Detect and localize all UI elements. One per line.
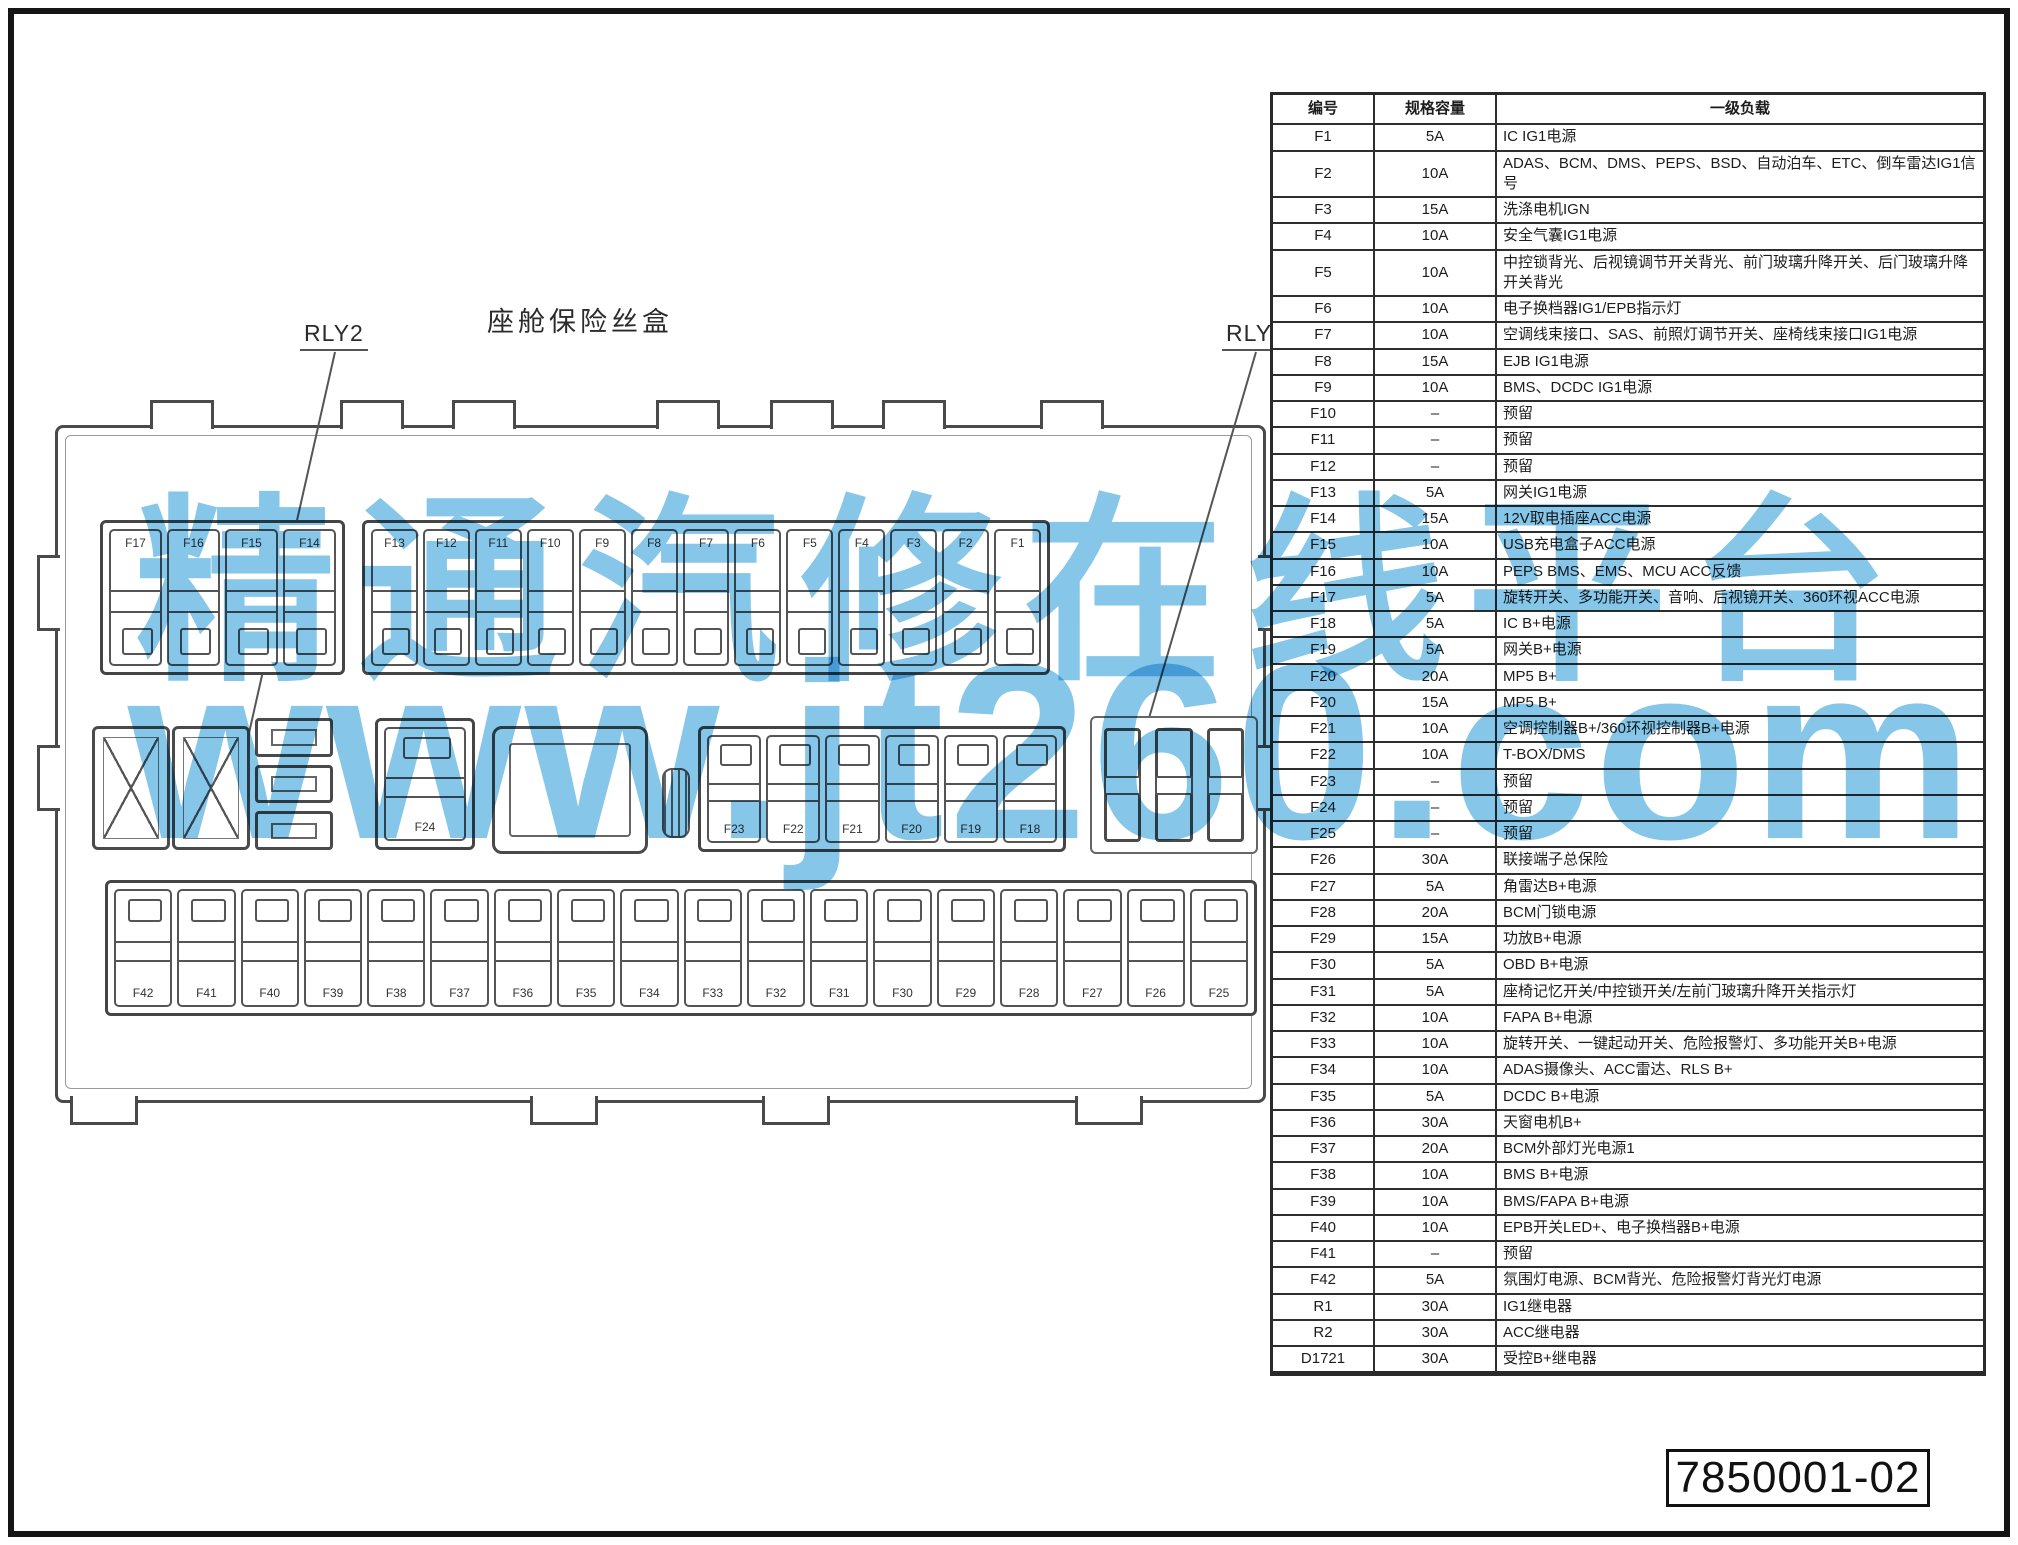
- fuse-label: F5: [788, 536, 831, 550]
- fuse-rating: 10A: [1374, 1005, 1496, 1031]
- fuse-load: 角雷达B+电源: [1496, 874, 1985, 900]
- fuse-bar: [683, 590, 730, 614]
- fuse-label: F39: [306, 986, 360, 1000]
- fuse-id: F22: [1272, 742, 1375, 768]
- fuse-row-F4: F410A安全气囊IG1电源: [1272, 223, 1985, 249]
- fuse-bar: [1190, 941, 1248, 962]
- fuse-bar: [114, 941, 172, 962]
- fuse-F19: F19: [944, 735, 998, 843]
- fuse-load: 电子换档器IG1/EPB指示灯: [1496, 296, 1985, 322]
- fuse-id: F20: [1272, 664, 1375, 690]
- fuse-row-R1: R130AIG1继电器: [1272, 1294, 1985, 1320]
- fuse-F42: F42: [114, 889, 172, 1007]
- fuse-load: 受控B+继电器: [1496, 1346, 1985, 1374]
- fuse-label: F27: [1065, 986, 1119, 1000]
- fuse-row-F12: F12–预留: [1272, 454, 1985, 480]
- fuse-load: 空调线束接口、SAS、前照灯调节开关、座椅线束接口IG1电源: [1496, 322, 1985, 348]
- fuse-row-F3: F315A洗涤电机IGN: [1272, 197, 1985, 223]
- fuse-load: 中控锁背光、后视镜调节开关背光、前门玻璃升降开关、后门玻璃升降开关背光: [1496, 250, 1985, 297]
- fuse-id: F38: [1272, 1162, 1375, 1188]
- fuse-table-head: 编号 规格容量 一级负载: [1272, 94, 1985, 125]
- fuse-load: 网关IG1电源: [1496, 480, 1985, 506]
- fuse-load: 空调控制器B+/360环视控制器B+电源: [1496, 716, 1985, 742]
- fuse-F15: F15: [225, 529, 278, 666]
- fuse-row-F13: F135A网关IG1电源: [1272, 480, 1985, 506]
- fuse-label: F8: [633, 536, 676, 550]
- fuse-label: F28: [1002, 986, 1056, 1000]
- fuse-slot: [1204, 899, 1238, 922]
- fuse-rating: 30A: [1374, 1294, 1496, 1320]
- fuse-row-F10: F10–预留: [1272, 401, 1985, 427]
- fuse-bar: [527, 590, 574, 614]
- fuse-id: F4: [1272, 223, 1375, 249]
- fuse-F10: F10: [527, 529, 574, 666]
- fuse-rating: 10A: [1374, 742, 1496, 768]
- fuse-row-F28: F2820ABCM门锁电源: [1272, 900, 1985, 926]
- fuse-slot: [720, 744, 752, 766]
- fuse-rating: 5A: [1374, 124, 1496, 150]
- fuse-load: 天窗电机B+: [1496, 1110, 1985, 1136]
- fuse-id: F6: [1272, 296, 1375, 322]
- fuse-slot: [898, 744, 930, 766]
- fuse-row-F29: F2915A功放B+电源: [1272, 926, 1985, 952]
- fuse-label: F10: [529, 536, 572, 550]
- fuse-rating: 15A: [1374, 690, 1496, 716]
- fuse-bar: [430, 941, 488, 962]
- fuse-F1: F1: [994, 529, 1041, 666]
- fuse-id: F3: [1272, 197, 1375, 223]
- fuse-load: 12V取电插座ACC电源: [1496, 506, 1985, 532]
- fuse-load: 预留: [1496, 427, 1985, 453]
- fuse-bar: [786, 590, 833, 614]
- fuse-bar: [994, 590, 1041, 614]
- fuse-rating: 5A: [1374, 611, 1496, 637]
- fuse-F40: F40: [241, 889, 299, 1007]
- fuse-F33: F33: [684, 889, 742, 1007]
- fuse-id: F32: [1272, 1005, 1375, 1031]
- fuse-row-F27: F275A角雷达B+电源: [1272, 874, 1985, 900]
- fuse-rating: 20A: [1374, 664, 1496, 690]
- fuse-label: F12: [425, 536, 468, 550]
- fuse-label: F4: [840, 536, 883, 550]
- fuse-slot: [902, 628, 930, 655]
- fuse-bar: [747, 941, 805, 962]
- fuse-load: MP5 B+: [1496, 664, 1985, 690]
- fuse-load: 网关B+电源: [1496, 637, 1985, 663]
- fuse-row-F20: F2020AMP5 B+: [1272, 664, 1985, 690]
- header-id: 编号: [1272, 94, 1375, 125]
- fuse-row-F41: F41–预留: [1272, 1241, 1985, 1267]
- fuse-slot: [1006, 628, 1034, 655]
- fuse-slot: [590, 628, 618, 655]
- fuse-rating: 15A: [1374, 349, 1496, 375]
- fuse-F13: F13: [371, 529, 418, 666]
- fuse-F38: F38: [367, 889, 425, 1007]
- fuse-bar: [177, 941, 235, 962]
- fuse-id: F5: [1272, 250, 1375, 297]
- fuse-rating: 30A: [1374, 1110, 1496, 1136]
- fuse-slot: [951, 899, 985, 922]
- fuse-F22: F22: [766, 735, 820, 843]
- fuse-rating: 10A: [1374, 1189, 1496, 1215]
- fuse-slot: [694, 628, 722, 655]
- fuse-slot: [954, 628, 982, 655]
- fuse-bar: [620, 941, 678, 962]
- fuse-slot: [238, 628, 269, 655]
- fuse-id: F28: [1272, 900, 1375, 926]
- fuse-id: F20: [1272, 690, 1375, 716]
- fuse-id: F36: [1272, 1110, 1375, 1136]
- fuse-load: T-BOX/DMS: [1496, 742, 1985, 768]
- fuse-label: F23: [709, 822, 759, 836]
- fuse-id: F30: [1272, 952, 1375, 978]
- fuse-load: FAPA B+电源: [1496, 1005, 1985, 1031]
- fuse-id: F12: [1272, 454, 1375, 480]
- fuse-F31: F31: [810, 889, 868, 1007]
- fuse-label: F29: [939, 986, 993, 1000]
- fuse-rating: 10A: [1374, 716, 1496, 742]
- fuse-bar: [367, 941, 425, 962]
- fuse-row-F19: F195A网关B+电源: [1272, 637, 1985, 663]
- fuse-id: F41: [1272, 1241, 1375, 1267]
- header-row: 编号 规格容量 一级负载: [1272, 94, 1985, 125]
- fuse-slot: [508, 899, 542, 922]
- fuse-rating: –: [1374, 821, 1496, 847]
- fuse-rating: 10A: [1374, 375, 1496, 401]
- fuse-F16: F16: [167, 529, 220, 666]
- fuse-label: F32: [749, 986, 803, 1000]
- fuse-label: F11: [477, 536, 520, 550]
- fuse-bar: [810, 941, 868, 962]
- fuse-row-F37: F3720ABCM外部灯光电源1: [1272, 1136, 1985, 1162]
- fuse-bar: [942, 590, 989, 614]
- fuse-F27: F27: [1063, 889, 1121, 1007]
- fuse-bar: [1127, 941, 1185, 962]
- fuse-row-F8: F815AEJB IG1电源: [1272, 349, 1985, 375]
- relay-slot: [1207, 728, 1244, 842]
- fuse-id: F34: [1272, 1057, 1375, 1083]
- fuse-F6: F6: [734, 529, 781, 666]
- fuse-bar: [873, 941, 931, 962]
- fuse-F23: F23: [707, 735, 761, 843]
- fuse-label: F38: [369, 986, 423, 1000]
- header-load: 一级负载: [1496, 94, 1985, 125]
- fuse-id: F35: [1272, 1084, 1375, 1110]
- fuse-row-R2: R230AACC继电器: [1272, 1320, 1985, 1346]
- fuse-load: USB充电盒子ACC电源: [1496, 532, 1985, 558]
- fuse-row-F23: F23–预留: [1272, 769, 1985, 795]
- fuse-slot: [779, 744, 811, 766]
- fuse-load: 预留: [1496, 821, 1985, 847]
- fuse-slot: [122, 628, 153, 655]
- fuse-label: F3: [892, 536, 935, 550]
- fuse-load: 旋转开关、一键起动开关、危险报警灯、多功能开关B+电源: [1496, 1031, 1985, 1057]
- fuse-F37: F37: [430, 889, 488, 1007]
- fuse-rating: 20A: [1374, 900, 1496, 926]
- fuse-id: F7: [1272, 322, 1375, 348]
- fuse-load: IC B+电源: [1496, 611, 1985, 637]
- relay-slot: [1155, 728, 1192, 842]
- fuse-F34: F34: [620, 889, 678, 1007]
- fuse-row-F40: F4010AEPB开关LED+、电子换档器B+电源: [1272, 1215, 1985, 1241]
- fuse-F29: F29: [937, 889, 995, 1007]
- fuse-slot: [798, 628, 826, 655]
- fuse-block-top-left: F17F16F15F14: [100, 520, 345, 675]
- fuse-rating: 5A: [1374, 1084, 1496, 1110]
- fuse-rating: 5A: [1374, 585, 1496, 611]
- fuse-load: OBD B+电源: [1496, 952, 1985, 978]
- fuse-load: 座椅记忆开关/中控锁开关/左前门玻璃升降开关指示灯: [1496, 979, 1985, 1005]
- fuse-row-D1721: D172130A受控B+继电器: [1272, 1346, 1985, 1374]
- fuse-load: BCM外部灯光电源1: [1496, 1136, 1985, 1162]
- fuse-id: F15: [1272, 532, 1375, 558]
- fuse-bar: [684, 941, 742, 962]
- fuse-rating: 10A: [1374, 151, 1496, 198]
- fuse-bar: [937, 941, 995, 962]
- fuse-table: 编号 规格容量 一级负载 F15AIC IG1电源F210AADAS、BCM、D…: [1270, 92, 1986, 1376]
- fuse-id: F1: [1272, 124, 1375, 150]
- fuse-F20: F20: [885, 735, 939, 843]
- fuse-id: F21: [1272, 716, 1375, 742]
- fuse-load: 预留: [1496, 795, 1985, 821]
- fuse-label: F31: [812, 986, 866, 1000]
- connector-large: [492, 726, 648, 854]
- fuse-load: PEPS BMS、EMS、MCU ACC反馈: [1496, 559, 1985, 585]
- fuse-F4: F4: [838, 529, 885, 666]
- fuse-slot: [255, 899, 289, 922]
- fuse-slot: [761, 899, 795, 922]
- fuse-load: IG1继电器: [1496, 1294, 1985, 1320]
- fuse-row-F16: F1610APEPS BMS、EMS、MCU ACC反馈: [1272, 559, 1985, 585]
- fuse-id: F26: [1272, 847, 1375, 873]
- fuse-load: 预留: [1496, 769, 1985, 795]
- fuse-bar: [371, 590, 418, 614]
- fuse-block-bottom: F42F41F40F39F38F37F36F35F34F33F32F31F30F…: [105, 880, 1257, 1016]
- fuse-label: F9: [581, 536, 624, 550]
- fuse-label: F22: [768, 822, 818, 836]
- fuse-F12: F12: [423, 529, 470, 666]
- fuse-load: ACC继电器: [1496, 1320, 1985, 1346]
- fuse-id: F9: [1272, 375, 1375, 401]
- fuse-label: F35: [559, 986, 613, 1000]
- fuse-row-F39: F3910ABMS/FAPA B+电源: [1272, 1189, 1985, 1215]
- fuse-rating: –: [1374, 1241, 1496, 1267]
- fuse-row-F33: F3310A旋转开关、一键起动开关、危险报警灯、多功能开关B+电源: [1272, 1031, 1985, 1057]
- fuse-bar: [494, 941, 552, 962]
- fuse-label: F30: [875, 986, 929, 1000]
- fuse-F3: F3: [890, 529, 937, 666]
- fuse-label: F17: [111, 536, 160, 550]
- fuse-bar: [241, 941, 299, 962]
- connector-cell: [255, 811, 333, 850]
- fuse-bar: [825, 783, 879, 803]
- fuse-F9: F9: [579, 529, 626, 666]
- fuse-row-F24: F24–预留: [1272, 795, 1985, 821]
- fuse-slot: [191, 899, 225, 922]
- fuse-rating: 10A: [1374, 1215, 1496, 1241]
- fuse-id: F42: [1272, 1267, 1375, 1293]
- relay-cross: [183, 737, 239, 839]
- fuse-slot: [180, 628, 211, 655]
- fuse-rating: –: [1374, 769, 1496, 795]
- fuse-row-F35: F355ADCDC B+电源: [1272, 1084, 1985, 1110]
- fuse-row-F2: F210AADAS、BCM、DMS、PEPS、BSD、自动泊车、ETC、倒车雷达…: [1272, 151, 1985, 198]
- fuse-slot: [403, 737, 451, 760]
- fuse-load: DCDC B+电源: [1496, 1084, 1985, 1110]
- fuse-label: F42: [116, 986, 170, 1000]
- fuse-label: F33: [686, 986, 740, 1000]
- fuse-load: BMS、DCDC IG1电源: [1496, 375, 1985, 401]
- fuse-load: MP5 B+: [1496, 690, 1985, 716]
- connector-cell: [255, 765, 333, 804]
- fuse-bar: [631, 590, 678, 614]
- fuse-label: F41: [179, 986, 233, 1000]
- fuse-load: 洗涤电机IGN: [1496, 197, 1985, 223]
- fuse-slot: [1016, 744, 1048, 766]
- fuse-row-F25: F25–预留: [1272, 821, 1985, 847]
- fuse-row-F31: F315A座椅记忆开关/中控锁开关/左前门玻璃升降开关指示灯: [1272, 979, 1985, 1005]
- fuse-load: 联接端子总保险: [1496, 847, 1985, 873]
- fuse-rating: 30A: [1374, 1346, 1496, 1374]
- fuse-label: F20: [887, 822, 937, 836]
- fuse-rating: 15A: [1374, 506, 1496, 532]
- fuse-bar: [579, 590, 626, 614]
- fuse-id: F19: [1272, 637, 1375, 663]
- fuse-row-F6: F610A电子换档器IG1/EPB指示灯: [1272, 296, 1985, 322]
- fuse-row-F36: F3630A天窗电机B+: [1272, 1110, 1985, 1136]
- fuse-slot: [957, 744, 989, 766]
- fuse-id: F14: [1272, 506, 1375, 532]
- fuse-F26: F26: [1127, 889, 1185, 1007]
- fuse-slot: [434, 628, 462, 655]
- relay-rly2-a: [92, 726, 170, 850]
- fuse-rating: 10A: [1374, 1031, 1496, 1057]
- fuse-load: EPB开关LED+、电子换档器B+电源: [1496, 1215, 1985, 1241]
- fuse-row-F1: F15AIC IG1电源: [1272, 124, 1985, 150]
- fuse-label: F13: [373, 536, 416, 550]
- fuse-row-F5: F510A中控锁背光、后视镜调节开关背光、前门玻璃升降开关、后门玻璃升降开关背光: [1272, 250, 1985, 297]
- fuse-slot: [642, 628, 670, 655]
- fuse-rating: 20A: [1374, 1136, 1496, 1162]
- fuse-bar: [838, 590, 885, 614]
- fuse-id: F27: [1272, 874, 1375, 900]
- fuse-load: 旋转开关、多功能开关、音响、后视镜开关、360环视ACC电源: [1496, 585, 1985, 611]
- fuse-F21: F21: [825, 735, 879, 843]
- fuse-label: F18: [1005, 822, 1055, 836]
- fuse-load: 安全气囊IG1电源: [1496, 223, 1985, 249]
- relay-cross: [103, 737, 159, 839]
- fuse-load: 氛围灯电源、BCM背光、危险报警灯背光灯电源: [1496, 1267, 1985, 1293]
- fuse-label: F2: [944, 536, 987, 550]
- fuse-bar: [766, 783, 820, 803]
- fuse-label: F16: [169, 536, 218, 550]
- hatch-capsule: [662, 768, 690, 838]
- fuse-bar: [384, 777, 466, 798]
- fuse-id: F17: [1272, 585, 1375, 611]
- fuse-row-F7: F710A空调线束接口、SAS、前照灯调节开关、座椅线束接口IG1电源: [1272, 322, 1985, 348]
- fuse-F14: F14: [283, 529, 336, 666]
- fuse-id: F37: [1272, 1136, 1375, 1162]
- fuse-load: ADAS摄像头、ACC雷达、RLS B+: [1496, 1057, 1985, 1083]
- fuse-label: F19: [946, 822, 996, 836]
- fuse-id: F39: [1272, 1189, 1375, 1215]
- fuse-id: F24: [1272, 795, 1375, 821]
- fuse-row-F32: F3210AFAPA B+电源: [1272, 1005, 1985, 1031]
- fuse-slot: [571, 899, 605, 922]
- fuse-row-F22: F2210AT-BOX/DMS: [1272, 742, 1985, 768]
- fuse-id: F2: [1272, 151, 1375, 198]
- fuse-id: F10: [1272, 401, 1375, 427]
- fuse-rating: 15A: [1374, 197, 1496, 223]
- fuse-id: F18: [1272, 611, 1375, 637]
- page: 座舱保险丝盒 RLY2 RLY1 F17F16F15F14 F13F12F11F…: [0, 0, 2018, 1545]
- fuse-id: F11: [1272, 427, 1375, 453]
- fuse-rating: 5A: [1374, 637, 1496, 663]
- fuse-bar: [423, 590, 470, 614]
- fuse-slot: [1140, 899, 1174, 922]
- fuse-load: 预留: [1496, 401, 1985, 427]
- fuse-slot: [486, 628, 514, 655]
- fuse-rating: 5A: [1374, 952, 1496, 978]
- relay-slot: [1104, 728, 1141, 842]
- fuse-id: F8: [1272, 349, 1375, 375]
- fuse-F36: F36: [494, 889, 552, 1007]
- fuse-slot: [444, 899, 478, 922]
- fuse-label: F6: [736, 536, 779, 550]
- fuse-slot: [887, 899, 921, 922]
- fuse-row-F11: F11–预留: [1272, 427, 1985, 453]
- fuse-F2: F2: [942, 529, 989, 666]
- fuse-load: BCM门锁电源: [1496, 900, 1985, 926]
- fuse-label: F26: [1129, 986, 1183, 1000]
- fuse-slot: [382, 628, 410, 655]
- fuse-row-F9: F910ABMS、DCDC IG1电源: [1272, 375, 1985, 401]
- fuse-load: BMS B+电源: [1496, 1162, 1985, 1188]
- doc-number: 7850001-02: [1666, 1449, 1930, 1507]
- fuse-slot: [746, 628, 774, 655]
- fuse-bar: [890, 590, 937, 614]
- fuse-bar: [1063, 941, 1121, 962]
- fuse-label: F15: [227, 536, 276, 550]
- fuse-rating: 10A: [1374, 250, 1496, 297]
- fuse-row-F20: F2015AMP5 B+: [1272, 690, 1985, 716]
- fuse-rating: 30A: [1374, 847, 1496, 873]
- fuse-slot: [296, 628, 327, 655]
- fuse-bar: [109, 590, 162, 614]
- fuse-id: R1: [1272, 1294, 1375, 1320]
- fuse-slot: [1077, 899, 1111, 922]
- fuse-load: 功放B+电源: [1496, 926, 1985, 952]
- fuse-bar: [707, 783, 761, 803]
- fuse-label: F21: [827, 822, 877, 836]
- relay-rly2-b: [172, 726, 250, 850]
- fuse-rating: –: [1374, 454, 1496, 480]
- fuse-F32: F32: [747, 889, 805, 1007]
- fuse-rating: 5A: [1374, 480, 1496, 506]
- fuse-row-F38: F3810ABMS B+电源: [1272, 1162, 1985, 1188]
- fuse-load: ADAS、BCM、DMS、PEPS、BSD、自动泊车、ETC、倒车雷达IG1信号: [1496, 151, 1985, 198]
- fuse-F41: F41: [177, 889, 235, 1007]
- fuse-slot: [697, 899, 731, 922]
- relay-group-rly1: [1090, 716, 1258, 854]
- fuse-rating: 10A: [1374, 1162, 1496, 1188]
- fuse-bar: [557, 941, 615, 962]
- fuse-rating: 10A: [1374, 322, 1496, 348]
- fuse-bar: [304, 941, 362, 962]
- fuse-rating: 10A: [1374, 1057, 1496, 1083]
- fuse-row-F42: F425A氛围灯电源、BCM背光、危险报警灯背光灯电源: [1272, 1267, 1985, 1293]
- fuse-slot: [381, 899, 415, 922]
